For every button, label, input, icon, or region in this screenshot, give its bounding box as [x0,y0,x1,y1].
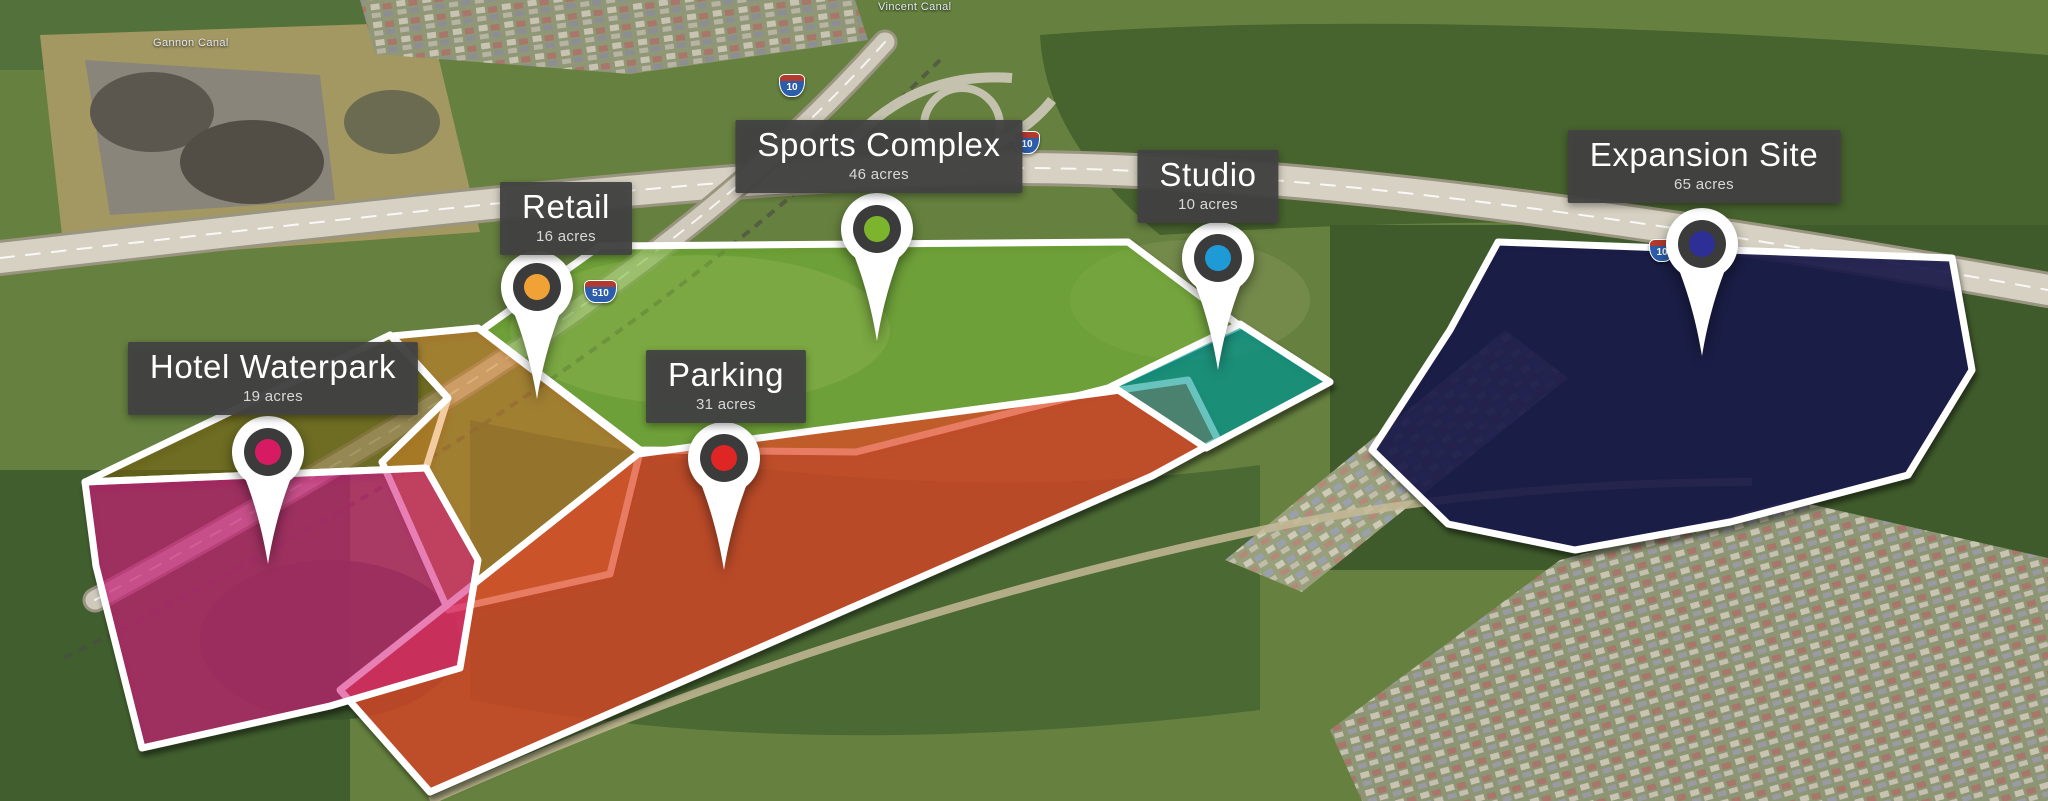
pin-dot [864,216,890,242]
callout-studio[interactable]: Studio 10 acres [1137,150,1278,223]
pin-dot [1205,245,1231,271]
parcel-name: Hotel Waterpark [150,349,396,386]
map-pin-sports-complex[interactable] [837,189,917,345]
pin-dot [524,274,550,300]
aerial-site-plan: Vincent Canal Gannon Canal 10 10 510 10 [0,0,2048,801]
map-pin-parking[interactable] [684,418,764,574]
parcel-acreage: 31 acres [668,396,784,413]
parcel-name: Sports Complex [757,127,1000,164]
callout-hotel-waterpark[interactable]: Hotel Waterpark 19 acres [128,342,418,415]
interstate-shield-510: 510 [584,280,617,303]
parcel-acreage: 10 acres [1159,196,1256,213]
parcel-name: Studio [1159,157,1256,194]
pin-dot [1689,231,1715,257]
shield-route-number: 510 [592,289,609,299]
shield-route-number: 10 [1021,140,1032,150]
pin-dot [711,445,737,471]
parcel-acreage: 19 acres [150,388,396,405]
parcel-name: Parking [668,357,784,394]
pin-dot [255,439,281,465]
map-pin-expansion-site[interactable] [1662,204,1742,360]
parcel-name: Expansion Site [1590,137,1819,174]
callout-retail[interactable]: Retail 16 acres [500,182,632,255]
map-label-vincent-canal: Vincent Canal [878,1,952,13]
callout-sports-complex[interactable]: Sports Complex 46 acres [735,120,1022,193]
parcel-acreage: 65 acres [1590,176,1819,193]
map-label-gannon-canal: Gannon Canal [153,37,229,49]
shield-route-number: 10 [786,83,797,93]
callout-expansion-site[interactable]: Expansion Site 65 acres [1568,130,1841,203]
map-pin-hotel-waterpark[interactable] [228,412,308,568]
parcel-acreage: 46 acres [757,166,1000,183]
parcel-name: Retail [522,189,610,226]
callout-parking[interactable]: Parking 31 acres [646,350,806,423]
map-pin-retail[interactable] [497,247,577,403]
parcel-acreage: 16 acres [522,228,610,245]
map-pin-studio[interactable] [1178,218,1258,374]
